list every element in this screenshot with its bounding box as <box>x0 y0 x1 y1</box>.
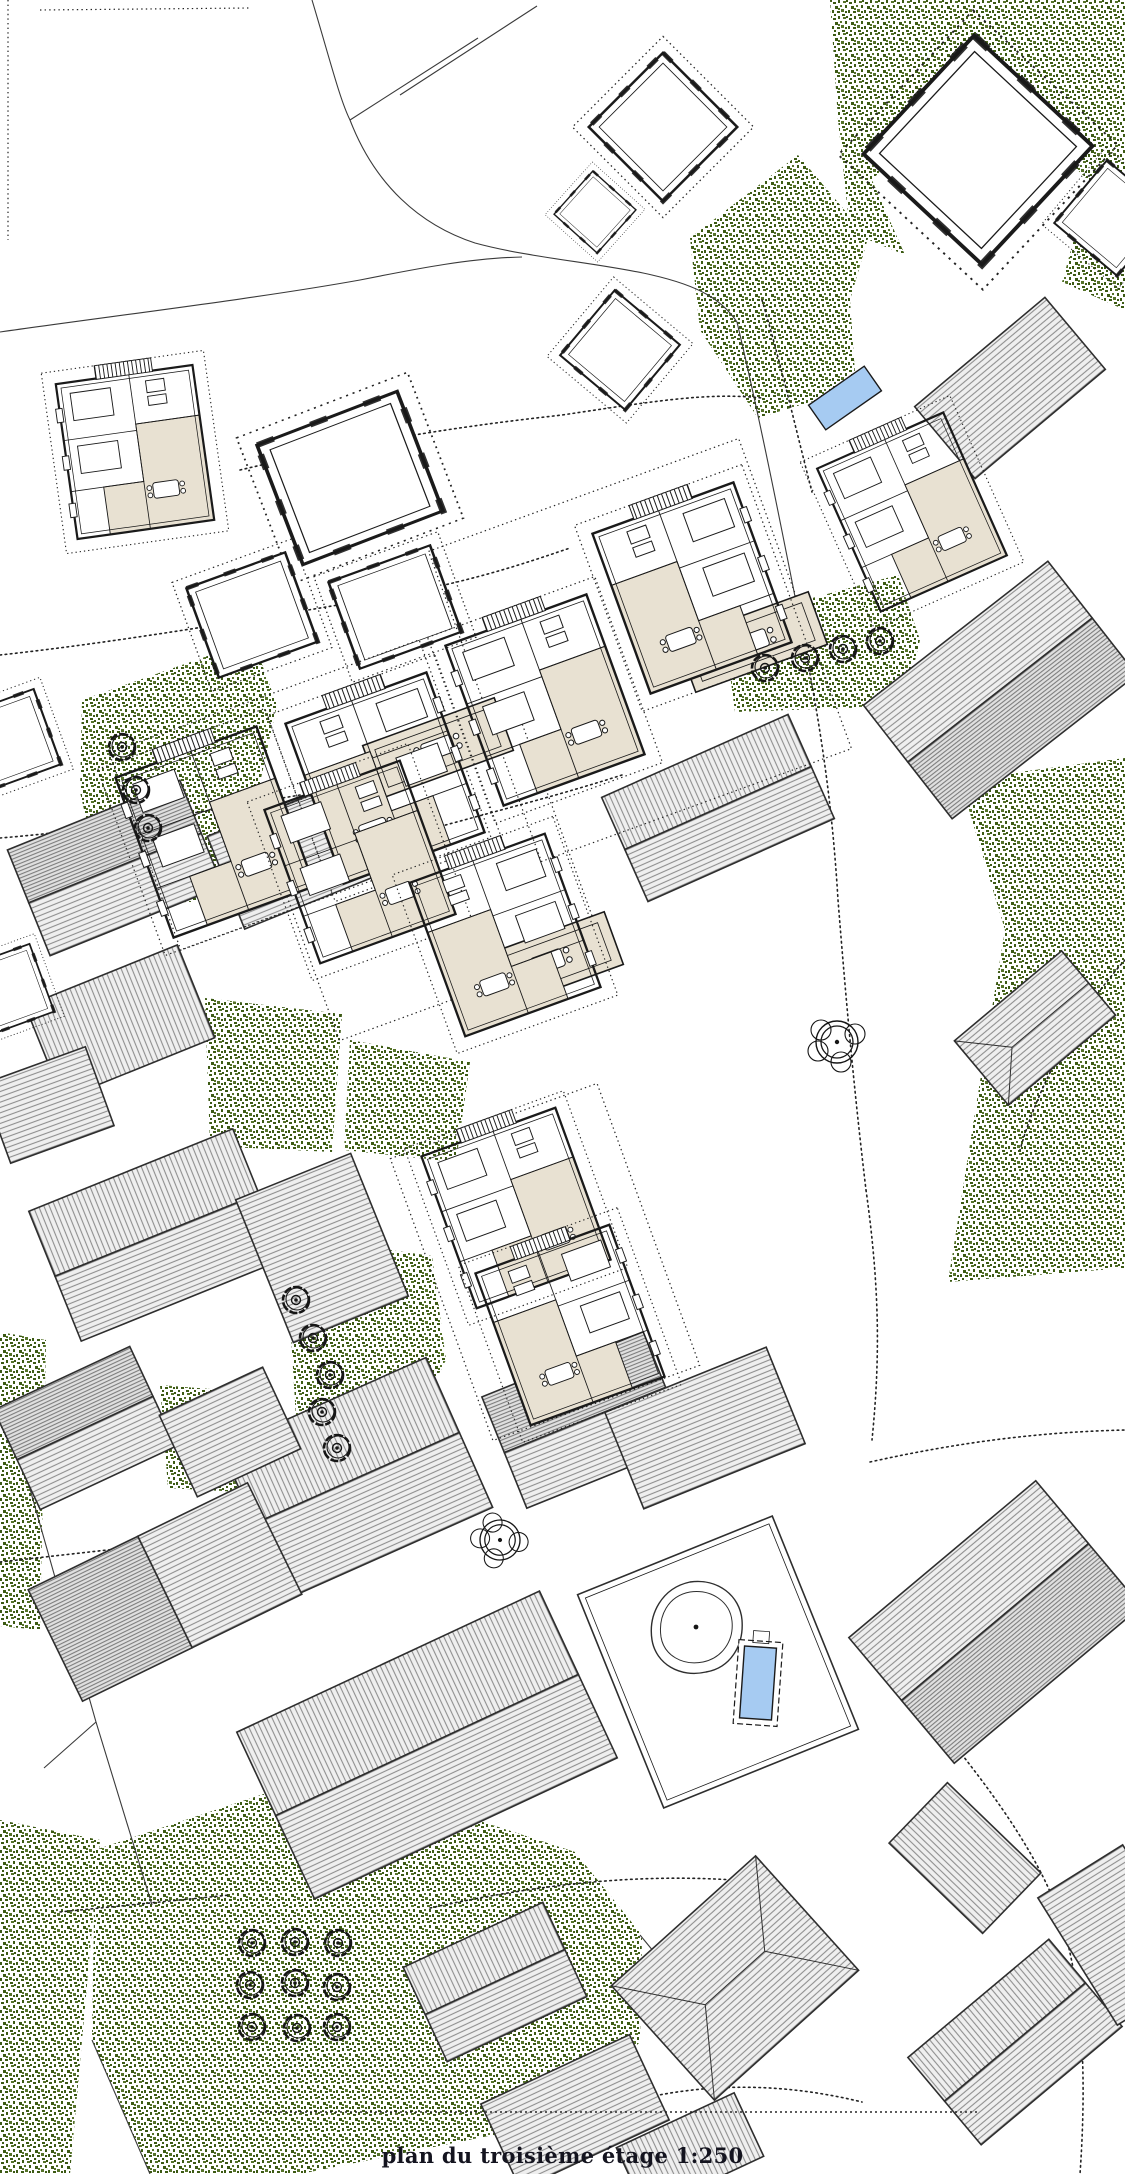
plan-sheet: plan du troisième étage 1:250 <box>0 0 1125 2174</box>
site-plan-drawing <box>0 0 1125 2174</box>
plan-caption: plan du troisième étage 1:250 <box>0 2143 1125 2168</box>
pool-main <box>733 1630 783 1727</box>
fountain-center-dot <box>694 1625 699 1630</box>
vegetation-center-1 <box>205 998 342 1152</box>
